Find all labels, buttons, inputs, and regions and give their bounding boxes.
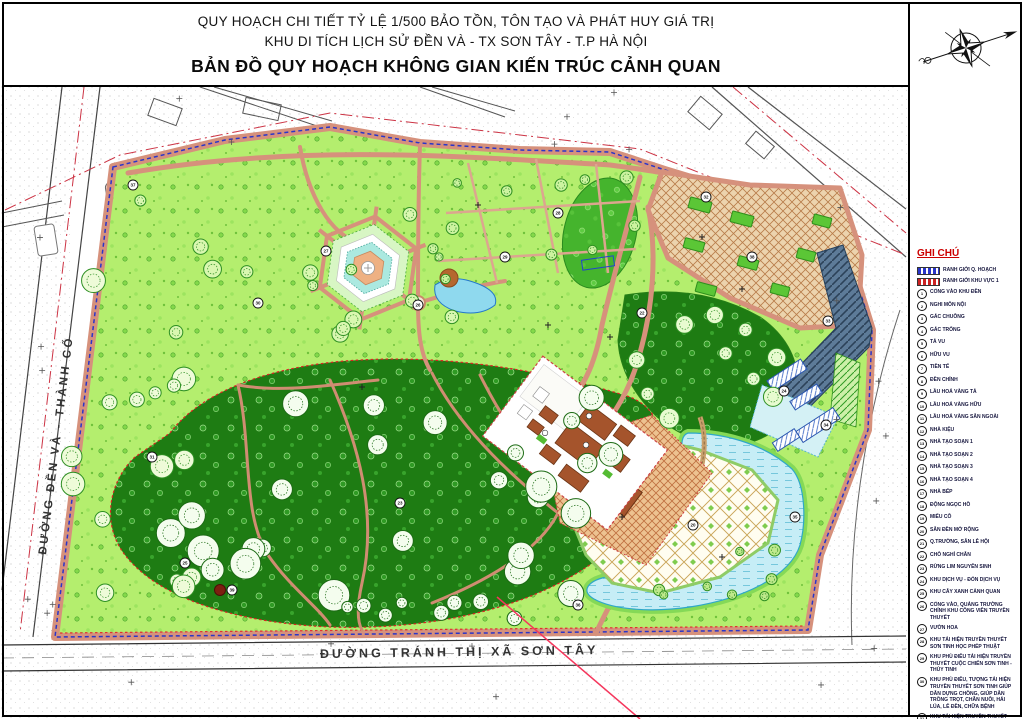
legend-item-number: 25	[917, 589, 927, 599]
legend-item: 30KHU PHÙ ĐIÊU, TƯỢNG TÁI HIỆN TRUYỀN TH…	[917, 676, 1017, 711]
legend-item-number: 1	[917, 289, 927, 299]
map-marker: 30	[253, 298, 263, 308]
legend-item: 31KHU TÁI HIỆN TRUYỀN THUYẾT SƠN TINH GI…	[917, 713, 1017, 719]
map-marker: 32	[701, 192, 711, 202]
legend-item: 1CỔNG VÀO KHU ĐỀN	[917, 288, 1017, 299]
svg-text:36: 36	[575, 603, 581, 608]
svg-text:25: 25	[182, 561, 188, 566]
legend-item-number: 23	[917, 564, 927, 574]
map-marker: 22	[637, 308, 647, 318]
boundary-line-swatch	[917, 278, 940, 286]
legend-item: 18ĐỘNG NGỌC HỒ	[917, 501, 1017, 512]
legend-item: 26CỔNG VÀO, QUẢNG TRƯỜNG CHÍNH KHU CÔNG …	[917, 601, 1017, 622]
legend-item-number: 19	[917, 514, 927, 524]
legend-label: RANH GIỚI KHU VỰC 1	[943, 277, 999, 285]
legend-label: ĐỘNG NGỌC HỒ	[930, 501, 970, 509]
legend-item: 27VƯỜN HOA	[917, 624, 1017, 635]
map-marker: 37	[128, 180, 138, 190]
legend-item: 2NGHI MÔN NỘI	[917, 301, 1017, 312]
map-marker: 28	[553, 208, 563, 218]
svg-text:22: 22	[639, 311, 645, 316]
legend-label: NHÀ KIỆU	[930, 426, 954, 434]
svg-text:37: 37	[130, 183, 136, 188]
legend-label: KHU TÁI HIỆN TRUYỀN THUYẾT SƠN TINH GIÚP…	[930, 713, 1017, 719]
legend-label: CHỖ NGHỈ CHÂN	[930, 551, 971, 559]
legend-item-number: 3	[917, 314, 927, 324]
legend-label: KHU CÂY XANH CẢNH QUAN	[930, 588, 1000, 596]
legend-label: NHÀ TẠO SOẠN 2	[930, 451, 973, 459]
legend-label: NHÀ TẠO SOẠN 1	[930, 438, 973, 446]
legend-boundary-item: RANH GIỚI KHU VỰC 1	[917, 277, 1017, 286]
legend-item: 4GÁC TRỐNG	[917, 326, 1017, 337]
svg-text:24: 24	[781, 389, 787, 394]
svg-text:38: 38	[749, 255, 755, 260]
legend-item-number: 27	[917, 624, 927, 634]
map-marker: 27	[321, 246, 331, 256]
svg-text:34: 34	[823, 423, 829, 428]
legend-label: ĐỀN CHÍNH	[930, 376, 958, 384]
legend-item-number: 5	[917, 339, 927, 349]
legend-item: 6HỮU VU	[917, 351, 1017, 362]
legend-item-number: 29	[917, 653, 927, 663]
plan-sheet: QUY HOẠCH CHI TIẾT TỶ LỆ 1/500 BẢO TỒN, …	[0, 0, 1024, 719]
legend-item: 17NHÀ BẾP	[917, 488, 1017, 499]
legend-label: CỔNG VÀO, QUẢNG TRƯỜNG CHÍNH KHU CÔNG VI…	[930, 601, 1017, 622]
legend-item-number: 22	[917, 551, 927, 561]
map-marker: 34	[821, 420, 831, 430]
legend-item: 10LẦU HOÁ VÀNG HỮU	[917, 401, 1017, 412]
legend-label: MIẾU CÔ	[930, 513, 951, 521]
svg-text:28: 28	[555, 211, 561, 216]
legend-item: 7TIỀN TẾ	[917, 363, 1017, 374]
legend-label: SÂN ĐỀN MỞ RỘNG	[930, 526, 979, 534]
legend-label: KHU DỊCH VỤ - ĐÓN DỊCH VỤ	[930, 576, 1000, 584]
title-block: QUY HOẠCH CHI TIẾT TỶ LỆ 1/500 BẢO TỒN, …	[4, 4, 908, 87]
page-title: BẢN ĐỒ QUY HOẠCH KHÔNG GIAN KIẾN TRÚC CẢ…	[191, 56, 721, 77]
legend-label: LẦU HOÁ VÀNG SÂN NGOÀI	[930, 413, 998, 421]
svg-text:20: 20	[690, 523, 696, 528]
legend-label: VƯỜN HOA	[930, 624, 958, 632]
map-marker: 24	[779, 386, 789, 396]
legend-item-number: 10	[917, 401, 927, 411]
legend-item-number: 8	[917, 376, 927, 386]
map-marker: 35	[790, 512, 800, 522]
map-marker: 23	[395, 498, 405, 508]
svg-text:23: 23	[397, 501, 403, 506]
map-marker: 39	[227, 585, 237, 595]
legend-item-number: 6	[917, 351, 927, 361]
legend-item: 29KHU PHÙ ĐIÊU TÁI HIỆN TRUYỀN THUYẾT CU…	[917, 653, 1017, 674]
legend-label: Q.TRƯỜNG, SÂN LỄ HỘI	[930, 538, 989, 546]
legend-item-number: 28	[917, 637, 927, 647]
legend-item-number: 26	[917, 601, 927, 611]
legend-item: 3GÁC CHUÔNG	[917, 313, 1017, 324]
legend-item-number: 11	[917, 414, 927, 424]
legend-item: 12NHÀ KIỆU	[917, 426, 1017, 437]
svg-text:39: 39	[229, 588, 235, 593]
legend-title: GHI CHÚ	[917, 248, 1017, 259]
map-marker: 33	[823, 316, 833, 326]
legend-label: LẦU HOÁ VÀNG TẢ	[930, 388, 977, 396]
legend-item: 25KHU CÂY XANH CẢNH QUAN	[917, 588, 1017, 599]
plan-subtitle-1: QUY HOẠCH CHI TIẾT TỶ LỆ 1/500 BẢO TỒN, …	[198, 12, 715, 32]
legend-item-number: 20	[917, 526, 927, 536]
legend-item: 14NHÀ TẠO SOẠN 2	[917, 451, 1017, 462]
svg-text:32: 32	[703, 195, 709, 200]
legend-item: 8ĐỀN CHÍNH	[917, 376, 1017, 387]
legend-item-number: 31	[917, 713, 927, 719]
map-canvas: 37272628293022323833243423312520353639 Đ…	[0, 85, 908, 719]
legend-item: 24KHU DỊCH VỤ - ĐÓN DỊCH VỤ	[917, 576, 1017, 587]
svg-text:26: 26	[415, 303, 421, 308]
legend-item: 9LẦU HOÁ VÀNG TẢ	[917, 388, 1017, 399]
legend-label: RỪNG LIM NGUYÊN SINH	[930, 563, 991, 571]
legend-label: NHÀ TẠO SOẠN 4	[930, 476, 973, 484]
boundary-line-swatch	[917, 267, 940, 275]
map-marker: 31	[147, 452, 157, 462]
legend-item: 28KHU TÁI HIỆN TRUYỀN THUYẾT SƠN TINH HỌ…	[917, 636, 1017, 651]
legend-item-number: 21	[917, 539, 927, 549]
legend-item: 20SÂN ĐỀN MỞ RỘNG	[917, 526, 1017, 537]
svg-text:29: 29	[502, 255, 508, 260]
legend-label: RANH GIỚI Q. HOẠCH	[943, 266, 996, 274]
legend-item-number: 13	[917, 439, 927, 449]
legend-item-number: 4	[917, 326, 927, 336]
svg-text:35: 35	[792, 515, 798, 520]
legend-label: KHU TÁI HIỆN TRUYỀN THUYẾT SƠN TINH HỌC …	[930, 636, 1017, 651]
legend-boundary-item: RANH GIỚI Q. HOẠCH	[917, 266, 1017, 275]
compass-rose	[910, 4, 1020, 89]
map-marker: 36	[573, 600, 583, 610]
map-marker: 25	[180, 558, 190, 568]
legend-item-number: 15	[917, 464, 927, 474]
legend-item: 21Q.TRƯỜNG, SÂN LỄ HỘI	[917, 538, 1017, 549]
legend-label: TẢ VU	[930, 338, 945, 346]
legend-item-number: 7	[917, 364, 927, 374]
plan-subtitle-2: KHU DI TÍCH LỊCH SỬ ĐỀN VÀ - TX SƠN TÂY …	[264, 32, 647, 52]
legend-item-number: 2	[917, 301, 927, 311]
legend-item-number: 16	[917, 476, 927, 486]
legend-item: 19MIẾU CÔ	[917, 513, 1017, 524]
legend-items: RANH GIỚI Q. HOẠCHRANH GIỚI KHU VỰC 11CỔ…	[917, 266, 1017, 719]
svg-text:27: 27	[323, 249, 329, 254]
legend-label: CỔNG VÀO KHU ĐỀN	[930, 288, 981, 296]
legend-label: TIỀN TẾ	[930, 363, 949, 371]
legend-item: 11LẦU HOÁ VÀNG SÂN NGOÀI	[917, 413, 1017, 424]
legend: GHI CHÚ RANH GIỚI Q. HOẠCHRANH GIỚI KHU …	[917, 248, 1017, 719]
legend-item-number: 18	[917, 501, 927, 511]
legend-label: KHU PHÙ ĐIÊU, TƯỢNG TÁI HIỆN TRUYỀN THUY…	[930, 676, 1017, 711]
svg-text:30: 30	[255, 301, 261, 306]
legend-item-number: 30	[917, 677, 927, 687]
legend-item-number: 14	[917, 451, 927, 461]
legend-label: NHÀ TẠO SOẠN 3	[930, 463, 973, 471]
map-marker: 20	[688, 520, 698, 530]
legend-item: 23RỪNG LIM NGUYÊN SINH	[917, 563, 1017, 574]
legend-item: 16NHÀ TẠO SOẠN 4	[917, 476, 1017, 487]
svg-text:33: 33	[825, 319, 831, 324]
legend-item: 15NHÀ TẠO SOẠN 3	[917, 463, 1017, 474]
legend-item: 5TẢ VU	[917, 338, 1017, 349]
legend-label: HỮU VU	[930, 351, 950, 359]
legend-label: GÁC TRỐNG	[930, 326, 961, 334]
legend-item-number: 17	[917, 489, 927, 499]
map-marker: 26	[413, 300, 423, 310]
legend-panel: GHI CHÚ RANH GIỚI Q. HOẠCHRANH GIỚI KHU …	[908, 4, 1022, 715]
legend-item-number: 9	[917, 389, 927, 399]
map-marker: 29	[500, 252, 510, 262]
svg-text:31: 31	[149, 455, 155, 460]
legend-item-number: 12	[917, 426, 927, 436]
legend-item-number: 24	[917, 576, 927, 586]
legend-item: 22CHỖ NGHỈ CHÂN	[917, 551, 1017, 562]
legend-label: LẦU HOÁ VÀNG HỮU	[930, 401, 981, 409]
legend-label: NGHI MÔN NỘI	[930, 301, 966, 309]
legend-label: KHU PHÙ ĐIÊU TÁI HIỆN TRUYỀN THUYẾT CUỘC…	[930, 653, 1017, 674]
transformer-station	[215, 585, 226, 596]
map-marker: 38	[747, 252, 757, 262]
legend-item: 13NHÀ TẠO SOẠN 1	[917, 438, 1017, 449]
legend-label: GÁC CHUÔNG	[930, 313, 965, 321]
legend-label: NHÀ BẾP	[930, 488, 953, 496]
